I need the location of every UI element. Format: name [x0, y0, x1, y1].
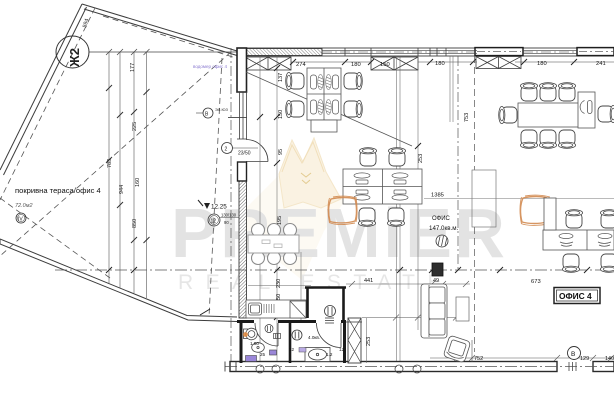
- svg-text:944: 944: [119, 185, 125, 194]
- svg-text:REAL ESTATE: REAL ESTATE: [178, 271, 454, 294]
- svg-text:95: 95: [278, 149, 284, 155]
- svg-text:180: 180: [351, 62, 361, 68]
- svg-text:225: 225: [132, 122, 138, 131]
- svg-text:ОФИС: ОФИС: [432, 216, 451, 222]
- svg-text:140: 140: [605, 356, 614, 362]
- svg-text:49: 49: [433, 278, 439, 284]
- svg-text:IV: IV: [18, 217, 23, 223]
- svg-text:12: 12: [339, 347, 345, 352]
- svg-text:147.0кв.м.: 147.0кв.м.: [429, 225, 458, 232]
- svg-text:2: 2: [225, 147, 228, 153]
- svg-text:90: 90: [224, 220, 229, 225]
- svg-text:673: 673: [531, 279, 541, 285]
- svg-text:12: 12: [211, 219, 217, 225]
- svg-text:177: 177: [130, 63, 136, 72]
- svg-text:274: 274: [296, 62, 306, 68]
- svg-text:72.0м2: 72.0м2: [15, 203, 33, 209]
- svg-text:850: 850: [132, 219, 138, 228]
- svg-text:23/50: 23/50: [238, 151, 251, 157]
- svg-text:12.25: 12.25: [211, 204, 227, 211]
- svg-text:Ж2: Ж2: [67, 48, 82, 68]
- svg-text:137: 137: [278, 73, 284, 82]
- svg-text:покривна тераса/офис 4: покривна тераса/офис 4: [15, 186, 101, 195]
- svg-text:25: 25: [260, 352, 266, 357]
- svg-text:253: 253: [418, 154, 424, 163]
- svg-text:752: 752: [474, 356, 483, 362]
- svg-text:253: 253: [366, 337, 372, 346]
- svg-text:129: 129: [580, 356, 589, 362]
- svg-text:водомер офис 4: водомер офис 4: [193, 64, 227, 69]
- svg-text:1.50: 1.50: [250, 341, 259, 346]
- svg-text:4.0кв.: 4.0кв.: [308, 335, 320, 340]
- svg-text:783: 783: [107, 159, 113, 168]
- svg-text:230: 230: [276, 279, 282, 288]
- svg-text:753: 753: [464, 113, 470, 122]
- svg-text:12: 12: [289, 347, 295, 352]
- svg-text:1.2: 1.2: [326, 352, 333, 357]
- svg-text:130/130: 130/130: [221, 213, 237, 218]
- svg-text:441: 441: [364, 278, 373, 284]
- svg-text:195: 195: [277, 216, 283, 225]
- svg-text:1385: 1385: [431, 193, 444, 199]
- svg-text:ОФИС 4: ОФИС 4: [559, 291, 592, 301]
- svg-text:160: 160: [135, 178, 141, 187]
- svg-text:В: В: [571, 351, 575, 358]
- svg-text:ЭЛ.ЮЗ: ЭЛ.ЮЗ: [215, 107, 229, 112]
- svg-text:150: 150: [380, 62, 390, 68]
